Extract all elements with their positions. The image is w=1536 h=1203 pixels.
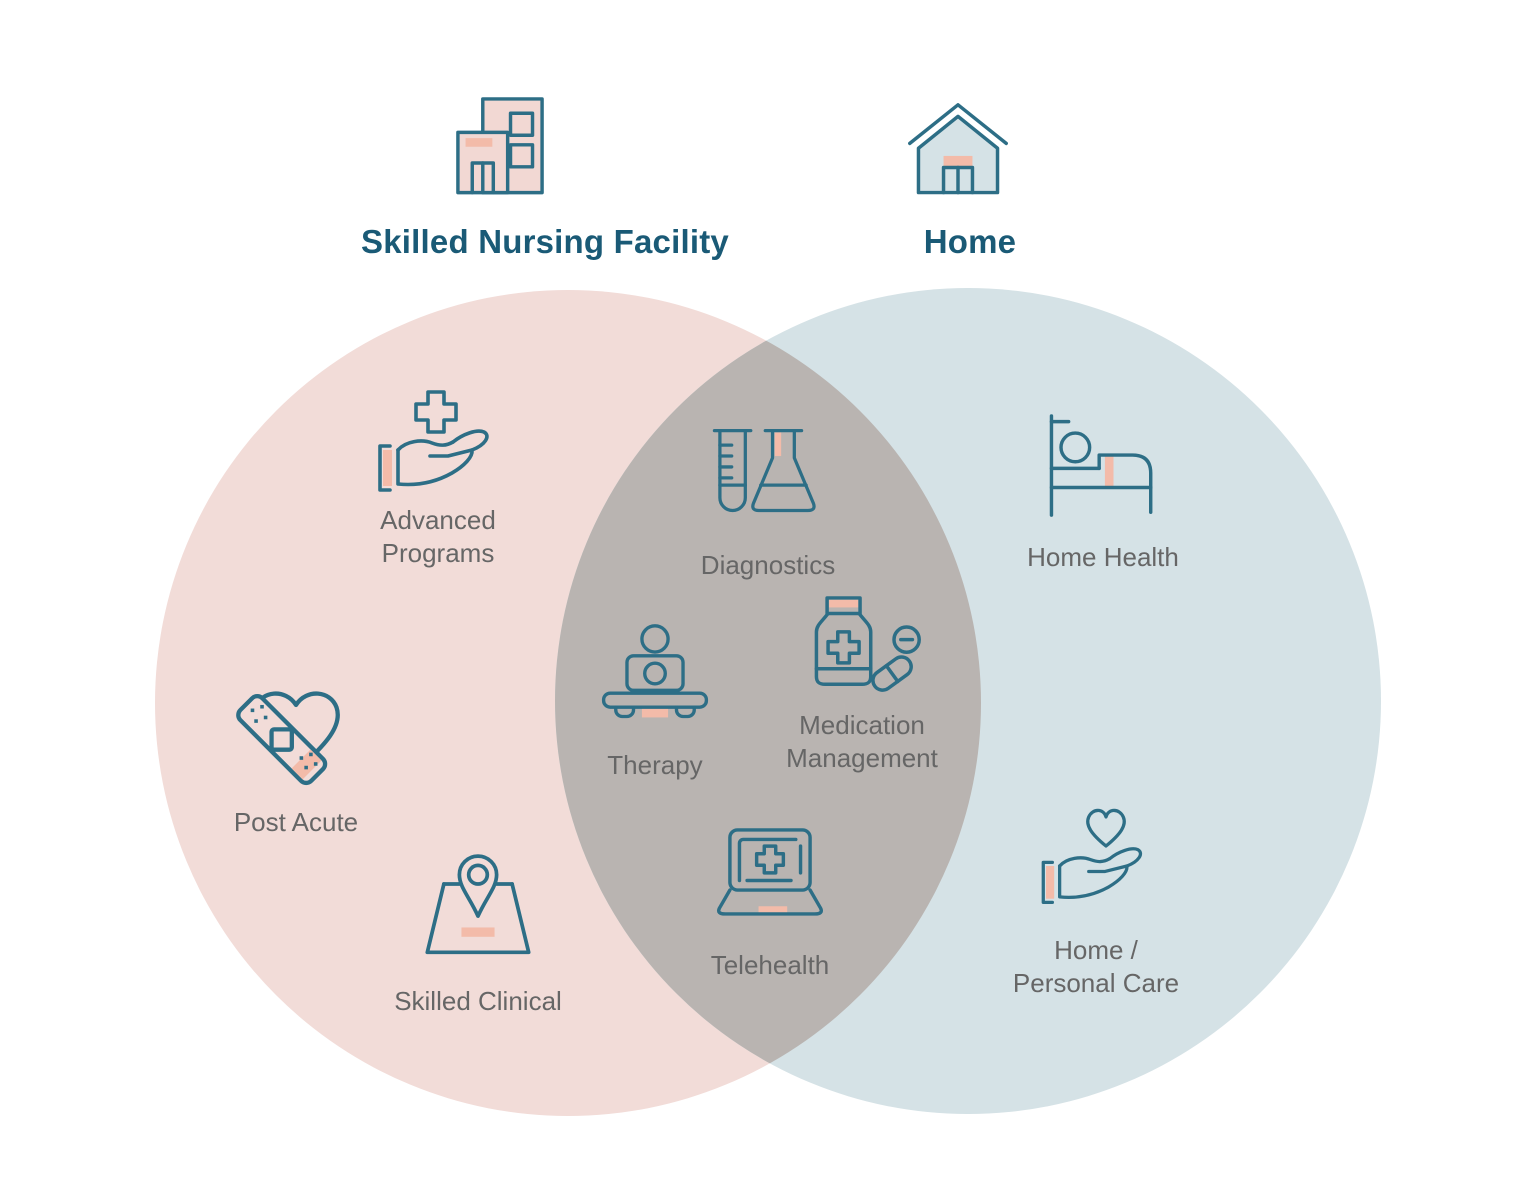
venn-item-label: Medication Management [752,709,972,775]
heart-bandage-icon [234,668,358,792]
venn-item-post-acute: Post Acute [186,668,406,839]
house-icon [904,100,1012,196]
venn-item-skilled-clinical: Skilled Clinical [368,853,588,1018]
venn-item-label: Post Acute [186,806,406,839]
person-laptop-icon [598,624,712,725]
venn-item-therapy: Therapy [545,624,765,782]
venn-item-label: Diagnostics [658,549,878,582]
venn-item-label: Therapy [545,749,765,782]
venn-item-home-health: Home Health [993,414,1213,574]
medication-bottle-icon [798,596,926,701]
map-pin-icon [418,853,538,961]
venn-item-label: Home / Personal Care [1011,934,1181,1000]
venn-item-diagnostics: Diagnostics [658,427,878,582]
laptop-medical-icon [707,828,833,923]
home-title: Home [860,223,1080,261]
snf-title: Skilled Nursing Facility [325,223,765,261]
patient-bed-icon [1040,414,1166,517]
venn-item-advanced-programs: Advanced Programs [363,386,513,570]
venn-item-label: Skilled Clinical [368,985,588,1018]
hand-heart-icon [1036,806,1156,908]
venn-item-medication-management: Medication Management [752,596,972,775]
venn-item-telehealth: Telehealth [660,828,880,982]
test-tube-flask-icon [709,427,827,523]
venn-item-label: Home Health [993,541,1213,574]
venn-item-label: Telehealth [660,949,880,982]
building-icon [456,97,544,195]
venn-item-home-personal-care: Home / Personal Care [1011,806,1181,1000]
hand-plus-icon [372,386,504,498]
venn-infographic: Skilled Nursing Facility Home Advanced P… [0,0,1536,1203]
venn-item-label: Advanced Programs [363,504,513,570]
